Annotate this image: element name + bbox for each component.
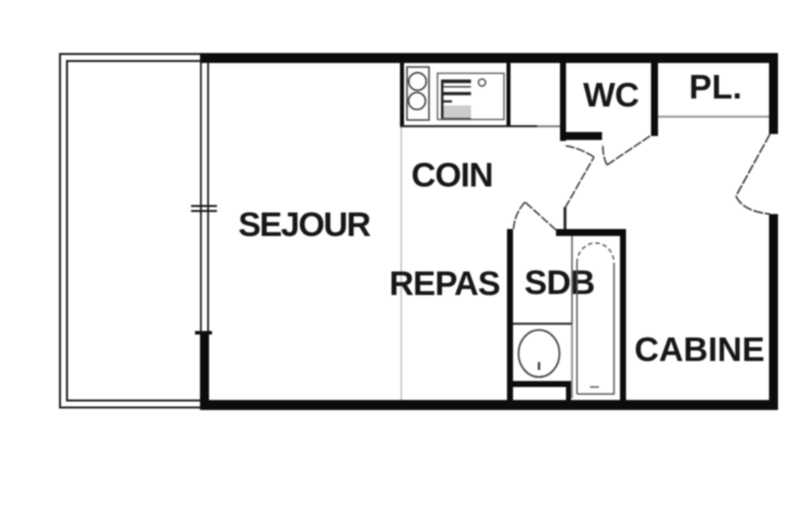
svg-text:REPAS: REPAS bbox=[389, 265, 500, 303]
svg-text:SEJOUR: SEJOUR bbox=[238, 206, 370, 244]
svg-text:WC: WC bbox=[583, 77, 639, 115]
svg-text:CABINE: CABINE bbox=[634, 331, 764, 369]
svg-text:COIN: COIN bbox=[411, 157, 492, 195]
svg-text:SDB: SDB bbox=[524, 264, 594, 302]
svg-text:PL.: PL. bbox=[689, 69, 742, 107]
